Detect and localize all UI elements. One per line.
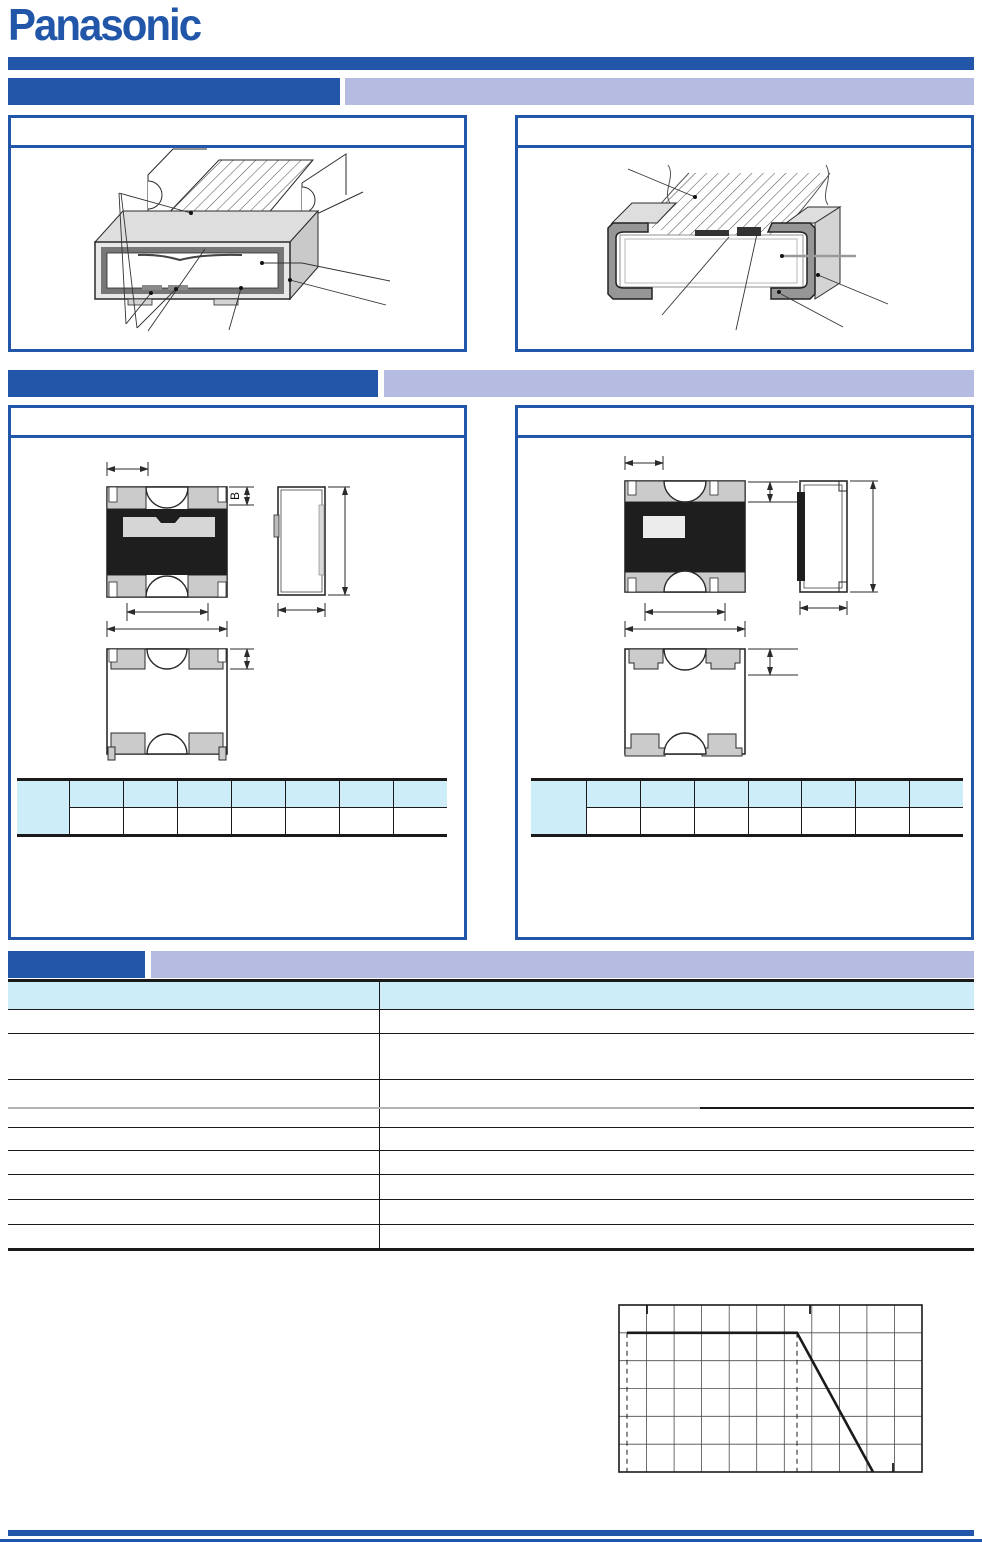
- table-value-cell: [909, 808, 963, 834]
- construction-panel-left: [8, 115, 467, 352]
- section2-title-bar: [8, 370, 378, 397]
- top-view: [625, 481, 745, 592]
- spec-row: [8, 1127, 974, 1150]
- spec-value: [380, 1225, 974, 1248]
- table-header-cell: [231, 781, 285, 808]
- table-value-cell: [69, 808, 123, 834]
- spec-item: [8, 1151, 380, 1174]
- bottom-view: [107, 649, 227, 760]
- table-header-cell: [640, 781, 694, 808]
- table-value-cell: [285, 808, 339, 834]
- construction-diagram-left: [11, 148, 464, 346]
- table-value-cell: [231, 808, 285, 834]
- table-header-cell: [855, 781, 909, 808]
- spec-row: [8, 1199, 974, 1224]
- construction-panel-right-caption: [518, 118, 971, 148]
- dimension-views-left: B: [11, 438, 464, 934]
- footer-rule-upper: [8, 1530, 974, 1536]
- dimension-drawing-right: [518, 438, 971, 934]
- dimension-views-right: [518, 438, 971, 934]
- table-corner-cell: [17, 781, 69, 834]
- spec-value: [380, 1128, 974, 1150]
- spec-item: [8, 1175, 380, 1199]
- spec-item: [8, 1010, 380, 1033]
- dimension-table-left: [17, 778, 447, 837]
- table-value-cell: [339, 808, 393, 834]
- side-view: [797, 481, 847, 592]
- dimensions-panel-left-caption: [11, 408, 464, 438]
- derating-curve: [627, 1333, 873, 1472]
- table-value-cell: [855, 808, 909, 834]
- table-value-cell: [586, 808, 640, 834]
- dimensions-panel-left: B: [8, 405, 467, 940]
- spec-header-row: [8, 982, 974, 1009]
- top-rule: [8, 57, 974, 70]
- spec-header-value: [380, 982, 974, 1009]
- spec-value: [380, 1151, 974, 1174]
- table-value-cell: [748, 808, 802, 834]
- table-header-cell: [909, 781, 963, 808]
- table-value-cell: [801, 808, 855, 834]
- spec-value: [380, 1200, 974, 1224]
- spec-row: [8, 1174, 974, 1199]
- spec-row: [8, 1033, 974, 1079]
- spec-value: [380, 1175, 974, 1199]
- table-header-cell: [285, 781, 339, 808]
- section3-subtitle-bar: [151, 951, 974, 978]
- table-header-cell: [748, 781, 802, 808]
- top-view: [107, 487, 227, 597]
- datasheet-page: Panasonic: [0, 0, 982, 1542]
- table-header-cell: [393, 781, 447, 808]
- spec-item: [8, 1200, 380, 1224]
- table-header-cell: [69, 781, 123, 808]
- derating-curve-chart: [600, 1293, 945, 1483]
- table-value-cell: [177, 808, 231, 834]
- dimension-table-right: [531, 778, 963, 837]
- dashed-guides: [627, 1333, 797, 1472]
- dimensions-panel-right: [515, 405, 974, 940]
- isometric-construction-drawing: [11, 148, 464, 346]
- spec-item: [8, 1034, 380, 1079]
- specifications-table: [8, 979, 974, 1251]
- spec-value: [380, 1034, 974, 1079]
- table-header-cell: [694, 781, 748, 808]
- spec-item: [8, 1225, 380, 1248]
- table-header-cell: [801, 781, 855, 808]
- table-header-cell: [123, 781, 177, 808]
- table-header-cell: [177, 781, 231, 808]
- spec-row: [8, 1224, 974, 1248]
- table-value-cell: [393, 808, 447, 834]
- dimensions-panel-right-caption: [518, 408, 971, 438]
- gray-divider-segment: [8, 1107, 700, 1109]
- spec-item: [8, 1128, 380, 1150]
- spec-row: [8, 1150, 974, 1174]
- construction-diagram-right: [518, 148, 971, 346]
- spec-header-item: [8, 982, 380, 1009]
- side-view: [274, 487, 325, 595]
- section3-title-bar: [8, 951, 145, 978]
- table-value-cell: [694, 808, 748, 834]
- dimension-drawing-left: B: [11, 438, 464, 934]
- bottom-view: [625, 649, 745, 756]
- section1-title-bar: [8, 78, 340, 105]
- derating-graph: [600, 1293, 945, 1483]
- spec-value: [380, 1010, 974, 1033]
- table-value-cell: [123, 808, 177, 834]
- table-header-cell: [339, 781, 393, 808]
- section1-subtitle-bar: [345, 78, 974, 105]
- spec-row: [8, 1079, 974, 1104]
- dimension-label-b: B: [228, 492, 242, 500]
- table-header-cell: [586, 781, 640, 808]
- table-corner-cell: [531, 781, 586, 834]
- spec-value: [380, 1080, 974, 1104]
- spec-row: [8, 1009, 974, 1033]
- spec-item: [8, 1080, 380, 1104]
- construction-panel-left-caption: [11, 118, 464, 148]
- section2-subtitle-bar: [384, 370, 974, 397]
- cross-section-construction-drawing: [518, 148, 971, 346]
- table-value-cell: [640, 808, 694, 834]
- construction-panel-right: [515, 115, 974, 352]
- grid-lines: [619, 1305, 922, 1472]
- black-divider-segment: [700, 1107, 974, 1109]
- panasonic-logo: Panasonic: [8, 0, 200, 50]
